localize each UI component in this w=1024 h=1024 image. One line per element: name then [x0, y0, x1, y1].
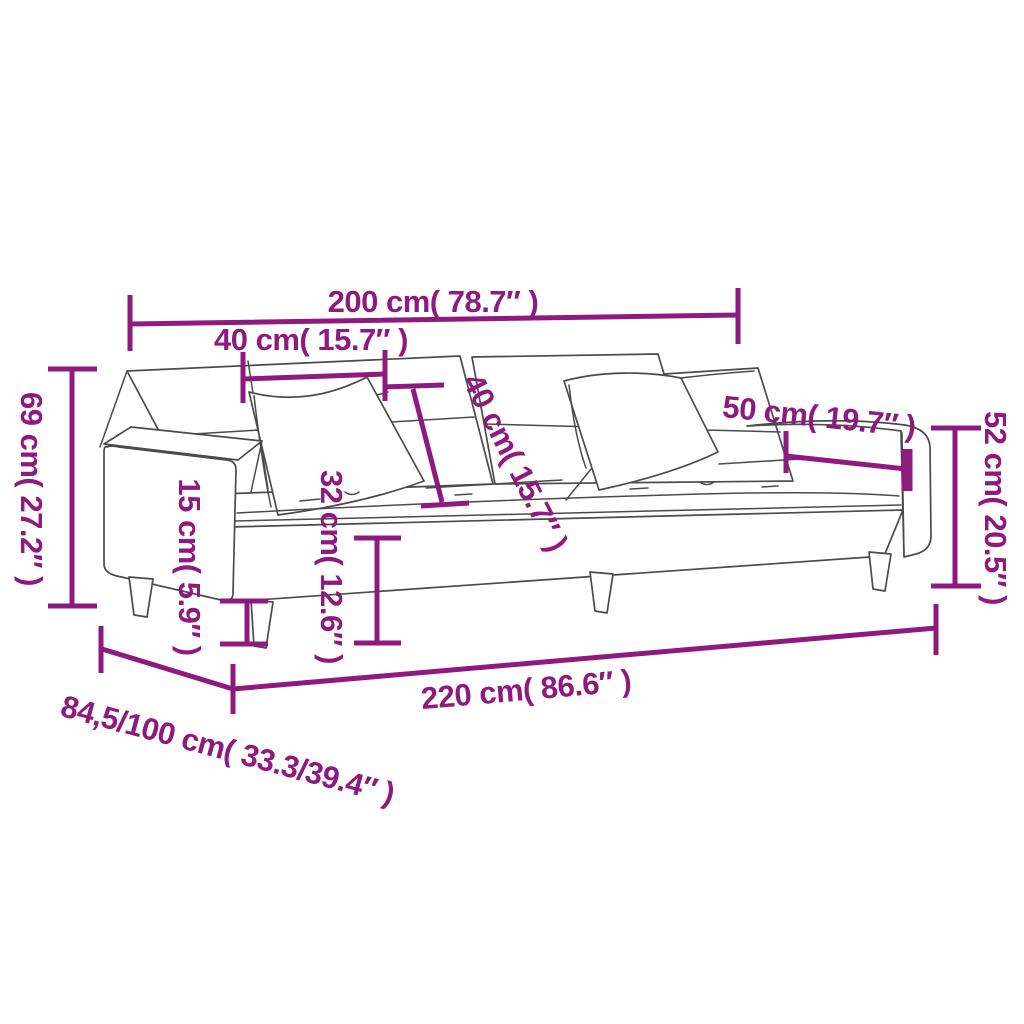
back-height-dimension: 69 cm( 27.2″ ): [14, 369, 97, 606]
leg-mid-right: [590, 572, 613, 613]
seat-height-label: 32 cm( 12.6″ ): [314, 470, 349, 664]
leg-mid-left: [251, 600, 273, 648]
depth-label: 84,5/100 cm( 33.3/39.4″ ): [57, 688, 398, 811]
arm-height-dimension: 52 cm( 20.5″ ): [931, 411, 1013, 605]
back-cushion-width-label: 40 cm( 15.7″ ): [214, 322, 408, 357]
back-height-line: [48, 369, 97, 606]
arm-height-line: [931, 428, 981, 586]
leg-front-right: [869, 552, 891, 591]
leg-front-left: [129, 577, 153, 617]
leg-height-label: 15 cm( 5.9″ ): [172, 478, 207, 655]
left-armrest-front: [104, 446, 236, 601]
top-width-label: 200 cm( 78.7″ ): [328, 284, 539, 319]
arm-height-label: 52 cm( 20.5″ ): [978, 411, 1013, 605]
diagram-canvas: 200 cm( 78.7″ ) 40 cm( 15.7″ ) 40 cm( 15…: [0, 0, 1024, 1024]
depth-line: [101, 626, 233, 689]
back-height-label: 69 cm( 27.2″ ): [14, 392, 49, 586]
sofa-dimension-diagram: 200 cm( 78.7″ ) 40 cm( 15.7″ ) 40 cm( 15…: [0, 0, 1024, 1024]
